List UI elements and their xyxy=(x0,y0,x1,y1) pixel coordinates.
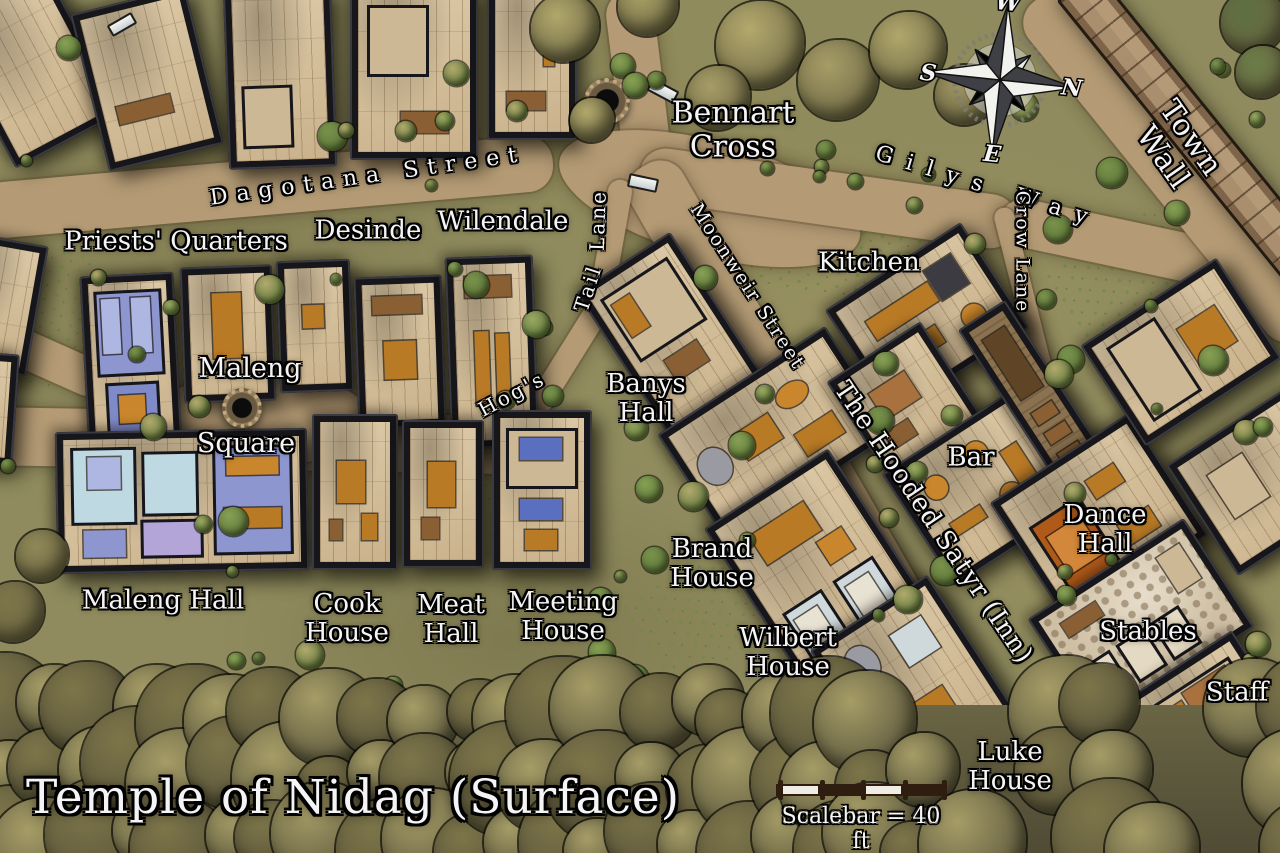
map-label-kitchen: Kitchen xyxy=(818,248,920,277)
mark xyxy=(1156,544,1201,593)
tree-icon xyxy=(91,270,106,285)
scalebar-rail xyxy=(778,780,944,800)
map-label-bar: Bar xyxy=(947,443,994,472)
building-meat-hall-bldg xyxy=(402,420,484,568)
mark xyxy=(772,376,812,413)
scalebar-segment xyxy=(903,786,945,794)
mark xyxy=(1208,454,1269,519)
mark xyxy=(303,305,325,329)
tree-icon xyxy=(642,547,668,573)
tree-icon xyxy=(228,653,245,670)
tree-icon xyxy=(756,385,774,403)
compass-rose: W N E S xyxy=(908,0,1093,172)
map-label-luke-house: Luke House xyxy=(968,738,1052,796)
map-label-maleng-hall: Maleng Hall xyxy=(82,586,244,615)
scalebar-tick xyxy=(778,780,783,800)
mark xyxy=(131,297,153,353)
map-label-maleng-square-1: Maleng xyxy=(198,354,301,384)
room xyxy=(141,450,199,516)
building-floor xyxy=(80,0,214,162)
map-label-banys-hall: Banys Hall xyxy=(606,370,685,428)
tree-icon xyxy=(679,482,708,511)
tree-icon xyxy=(814,171,825,182)
mark xyxy=(337,461,365,503)
mark xyxy=(525,530,557,550)
map-label-meeting-house: Meeting House xyxy=(508,588,618,646)
tree-icon xyxy=(880,509,898,527)
mark xyxy=(372,295,422,314)
tree-icon xyxy=(227,566,238,577)
compass-letter-north: N xyxy=(1059,74,1085,102)
mark xyxy=(211,293,242,359)
tree-icon xyxy=(523,311,551,339)
compass-letter-west: W xyxy=(994,0,1025,18)
tree-icon xyxy=(1045,360,1073,388)
tree-canopy-icon xyxy=(1236,46,1280,98)
tree-icon xyxy=(907,198,922,213)
room xyxy=(367,5,429,77)
mark xyxy=(428,462,454,507)
map-label-wilbert-house: Wilbert House xyxy=(739,624,837,682)
tree-canopy-icon xyxy=(1221,0,1280,54)
mark xyxy=(749,502,821,565)
tree-icon xyxy=(965,234,985,254)
tree-icon xyxy=(21,155,32,166)
building-floor xyxy=(320,422,390,562)
mark xyxy=(520,499,562,521)
mark xyxy=(83,530,126,558)
tree-icon xyxy=(1057,586,1075,604)
building-cook-house-bldg xyxy=(312,414,398,570)
scalebar-label: Scalebar = 40 ft xyxy=(778,804,944,853)
tree-canopy-icon xyxy=(531,0,599,62)
map-label-cook-house: Cook House xyxy=(305,590,389,648)
scalebar-segment xyxy=(861,786,903,794)
mark xyxy=(1044,421,1072,445)
tree-icon xyxy=(1199,346,1228,375)
mark xyxy=(384,341,417,380)
building-meeting-house-bldg xyxy=(492,410,592,570)
tree-canopy-icon xyxy=(0,582,44,642)
compass-letter-south: S xyxy=(919,60,938,88)
tree-icon xyxy=(694,266,718,290)
tree-icon xyxy=(623,73,648,98)
tree-icon xyxy=(874,352,897,375)
tree-canopy-icon xyxy=(798,40,878,120)
tree-icon xyxy=(331,274,342,285)
map-label-dance-hall: Dance Hall xyxy=(1063,501,1146,559)
mark xyxy=(816,527,855,565)
mark xyxy=(100,299,122,355)
map-label-staff: Staff xyxy=(1206,678,1268,707)
mark xyxy=(362,514,377,539)
compass-letter-east: E xyxy=(981,141,1003,169)
mark xyxy=(330,520,343,540)
mark xyxy=(87,457,121,490)
map-label-priests-quarters: Priests' Quarters xyxy=(64,227,288,256)
map-label-hogs-tail-lane-3: Lane xyxy=(586,189,611,252)
tree-icon xyxy=(195,516,212,533)
map-title: Temple of Nidag (Surface) xyxy=(26,770,680,825)
tree-icon xyxy=(942,406,962,426)
tree-icon xyxy=(256,275,284,303)
scalebar-segment xyxy=(820,786,862,794)
scalebar: Scalebar = 40 ft xyxy=(778,780,944,853)
tree-icon xyxy=(1254,418,1272,436)
fantasy-town-map: W N E S Temple of Nidag (Surface) Scaleb… xyxy=(0,0,1280,853)
building-floor xyxy=(0,358,11,458)
building-floor xyxy=(410,428,476,560)
building-floor xyxy=(362,283,439,421)
mark xyxy=(1060,601,1103,637)
tree-icon xyxy=(507,101,527,121)
tree-icon xyxy=(1250,112,1265,127)
tree-icon xyxy=(1037,290,1056,309)
building-floor xyxy=(231,0,329,162)
scalebar-tick xyxy=(861,780,866,800)
mark xyxy=(890,616,941,667)
tree-icon xyxy=(729,432,755,458)
mark xyxy=(794,411,844,456)
tree-icon xyxy=(1058,565,1072,579)
mark xyxy=(422,518,439,539)
map-label-desinde: Desinde xyxy=(315,216,422,245)
tree-icon xyxy=(1097,158,1127,188)
map-label-bennart-cross: Bennart Cross xyxy=(672,96,795,163)
tree-icon xyxy=(1,459,15,473)
tree-icon xyxy=(1211,59,1225,73)
tree-icon xyxy=(164,300,179,315)
tree-icon xyxy=(219,507,248,536)
tree-icon xyxy=(636,476,661,501)
scalebar-segment xyxy=(778,786,820,794)
tree-icon xyxy=(464,272,490,298)
tree-icon xyxy=(253,653,264,664)
tree-icon xyxy=(396,121,416,141)
tree-canopy-icon xyxy=(16,530,68,582)
well-icon xyxy=(222,388,262,428)
map-label-stables: Stables xyxy=(1099,617,1196,646)
map-label-wilendale: Wilendale xyxy=(438,207,569,236)
scalebar-tick xyxy=(942,780,947,800)
mark xyxy=(1085,463,1124,498)
room xyxy=(242,85,295,150)
map-label-crow-lane: Crow Lane xyxy=(1011,191,1032,314)
tree-icon xyxy=(141,414,166,439)
map-label-maleng-square-2: Square xyxy=(197,429,295,459)
mark xyxy=(226,456,278,475)
building-floor xyxy=(500,418,584,562)
tree-icon xyxy=(129,347,144,362)
mark xyxy=(116,94,174,124)
mark xyxy=(520,438,562,460)
tree-icon xyxy=(894,586,922,614)
scalebar-tick xyxy=(820,780,825,800)
building-priests-quarters-house xyxy=(79,272,182,455)
tree-icon xyxy=(817,141,835,159)
tree-icon xyxy=(57,36,81,60)
map-label-brand-house: Brand House xyxy=(670,535,754,593)
tree-icon xyxy=(426,180,437,191)
scalebar-tick xyxy=(903,780,908,800)
tree-icon xyxy=(615,571,626,582)
building-north-house-1 xyxy=(70,0,224,172)
tree-icon xyxy=(873,609,885,621)
map-label-meat-hall: Meat Hall xyxy=(417,591,485,649)
mark xyxy=(1031,401,1059,425)
building-desinde-house xyxy=(353,275,446,430)
